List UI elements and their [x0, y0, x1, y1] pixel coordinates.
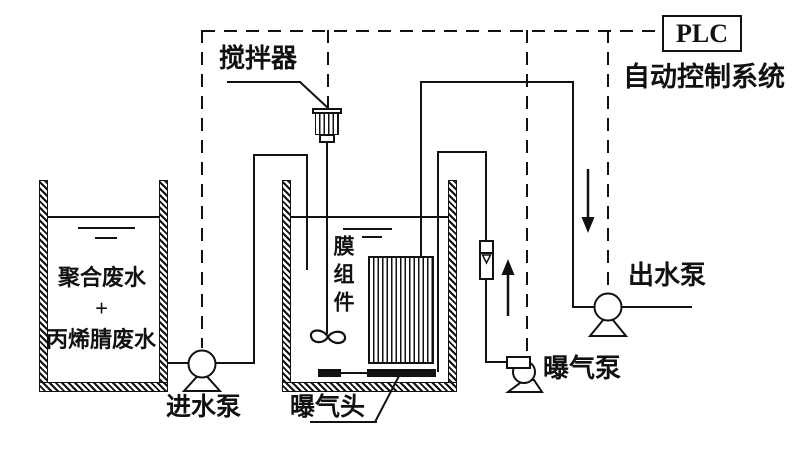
stirrer-leader-line: [298, 80, 330, 110]
effluent-pump-label: 出水泵: [628, 262, 706, 289]
aeration-head-bar-left: [318, 369, 341, 377]
mbr-tank-surface-mark-1: [343, 228, 392, 230]
pipe-permeate-riser: [420, 82, 422, 258]
stirrer-label-underline: [227, 81, 301, 83]
pipe-feed-top: [253, 154, 308, 156]
pipe-permeate-top: [420, 81, 574, 83]
control-line-aeration-pump: [526, 30, 528, 352]
control-flow-down-arrow-icon: [577, 168, 599, 234]
pipe-feed-drop: [306, 154, 308, 270]
plc-label: PLC: [664, 17, 740, 50]
control-line-feed-pump: [201, 30, 203, 348]
aeration-pump-icon: [504, 352, 548, 394]
feed-tank-label-plus: +: [95, 297, 108, 321]
feed-pump-label: 进水泵: [166, 395, 241, 421]
feed-tank-wall-right: [159, 180, 168, 392]
mbr-tank-wall-right: [448, 180, 457, 392]
feed-tank-bottom: [39, 382, 168, 392]
feed-tank-wall-left: [39, 180, 48, 392]
feed-tank-surface-mark-1: [78, 227, 135, 229]
feed-tank-label-2: 丙烯腈废水: [46, 328, 156, 351]
mbr-tank-bottom: [282, 382, 457, 392]
pipe-air-from-flowmeter: [485, 280, 487, 362]
air-flow-up-arrow-icon: [497, 258, 519, 318]
effluent-pump-icon: [586, 292, 630, 338]
stirrer-shaft: [326, 142, 328, 334]
mbr-tank-wall-left: [282, 180, 291, 392]
mbr-tank-surface-mark-2: [362, 236, 382, 238]
aeration-head-label-underline: [310, 421, 377, 423]
pipe-air-drop-in-tank: [437, 151, 439, 372]
feed-tank-label-1: 聚合废水: [58, 266, 146, 289]
flow-meter-float-icon: [480, 252, 493, 265]
feed-tank-surface-mark-2: [95, 237, 117, 239]
pipe-air-top: [437, 151, 487, 153]
mbr-tank-water-line: [291, 216, 448, 218]
membrane-module-label: 膜组件: [332, 235, 354, 330]
process-diagram: PLC 自动控制系统 聚合废水 + 丙烯腈废水 膜组件: [0, 0, 800, 449]
pipe-feed-riser: [253, 154, 255, 364]
pipe-permeate-down: [572, 81, 574, 308]
control-line-effluent-pump: [607, 30, 609, 289]
membrane-module: [368, 256, 434, 364]
stirrer-impeller-icon: [306, 325, 350, 349]
control-line-main: [202, 30, 662, 32]
stirrer-label: 搅拌器: [219, 45, 297, 72]
feed-tank-water-line: [48, 216, 159, 218]
aeration-head-link: [341, 372, 367, 374]
aeration-pump-label: 曝气泵: [543, 355, 621, 382]
pipe-effluent-out: [621, 306, 692, 308]
aeration-head-label: 曝气头: [290, 395, 365, 421]
stirrer-motor-body: [315, 113, 339, 135]
feed-pump-icon: [180, 347, 224, 393]
control-system-label: 自动控制系统: [623, 63, 785, 91]
aeration-head-leader-line: [373, 374, 401, 424]
plc-box: PLC: [662, 15, 742, 52]
pipe-air-to-flowmeter: [485, 151, 487, 240]
